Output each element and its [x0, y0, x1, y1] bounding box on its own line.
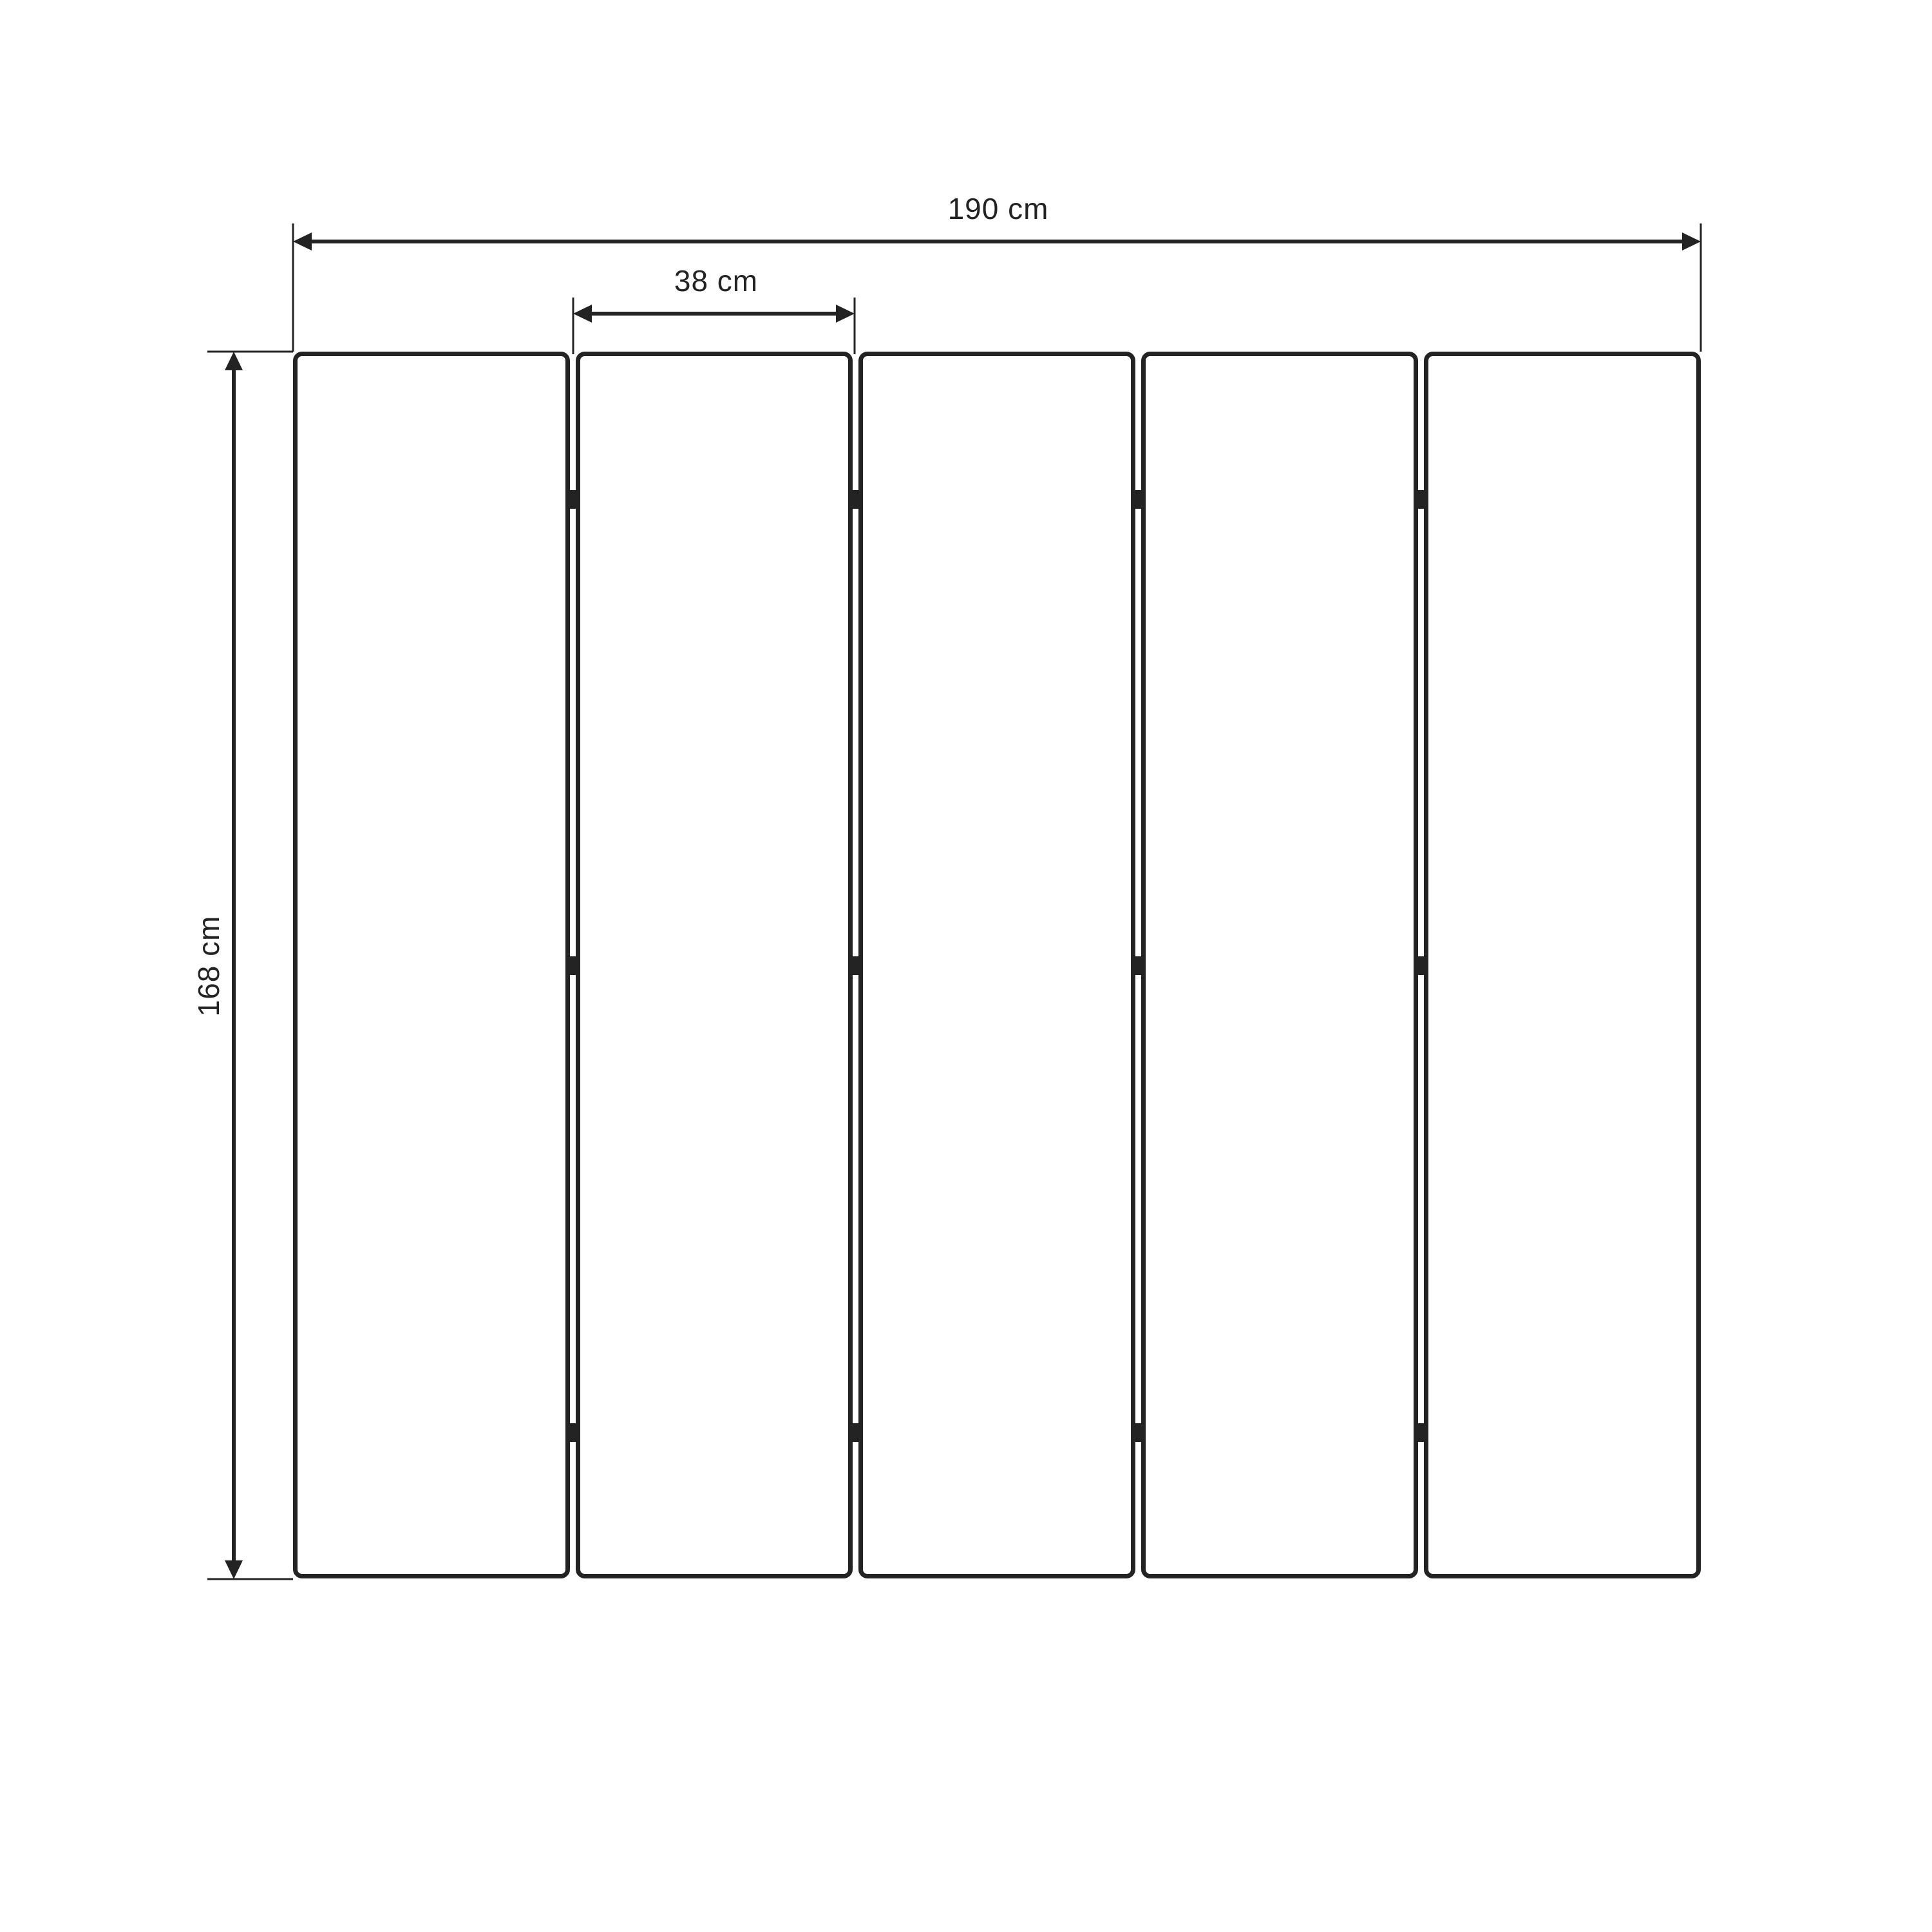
- hinge: [1133, 490, 1142, 509]
- hinge: [568, 956, 577, 975]
- hinge: [568, 490, 577, 509]
- arrow-left-icon: [293, 232, 312, 251]
- panel-width-dimension: [573, 298, 855, 354]
- panel-1: [293, 352, 570, 1578]
- arrow-up-icon: [225, 352, 243, 370]
- hinge: [851, 1423, 860, 1442]
- hinge: [851, 956, 860, 975]
- panel-5: [1424, 352, 1701, 1578]
- overall-width-dimension: [293, 223, 1701, 352]
- overall-height-label: 168 cm: [193, 869, 224, 1063]
- hinge: [1416, 490, 1425, 509]
- panel-2: [576, 352, 853, 1578]
- diagram-canvas: 190 cm 38 cm 168 cm: [0, 0, 1932, 1932]
- overall-width-label: 190 cm: [902, 193, 1095, 224]
- hinge: [568, 1423, 577, 1442]
- panel-3: [858, 352, 1135, 1578]
- arrow-right-icon: [836, 305, 855, 323]
- hinge: [1133, 956, 1142, 975]
- panel-4: [1141, 352, 1418, 1578]
- hinge: [1416, 1423, 1425, 1442]
- arrow-down-icon: [225, 1560, 243, 1579]
- hinge: [1133, 1423, 1142, 1442]
- panel-width-label: 38 cm: [620, 265, 813, 296]
- arrow-left-icon: [573, 305, 592, 323]
- hinge: [1416, 956, 1425, 975]
- arrow-right-icon: [1682, 232, 1701, 251]
- hinge: [851, 490, 860, 509]
